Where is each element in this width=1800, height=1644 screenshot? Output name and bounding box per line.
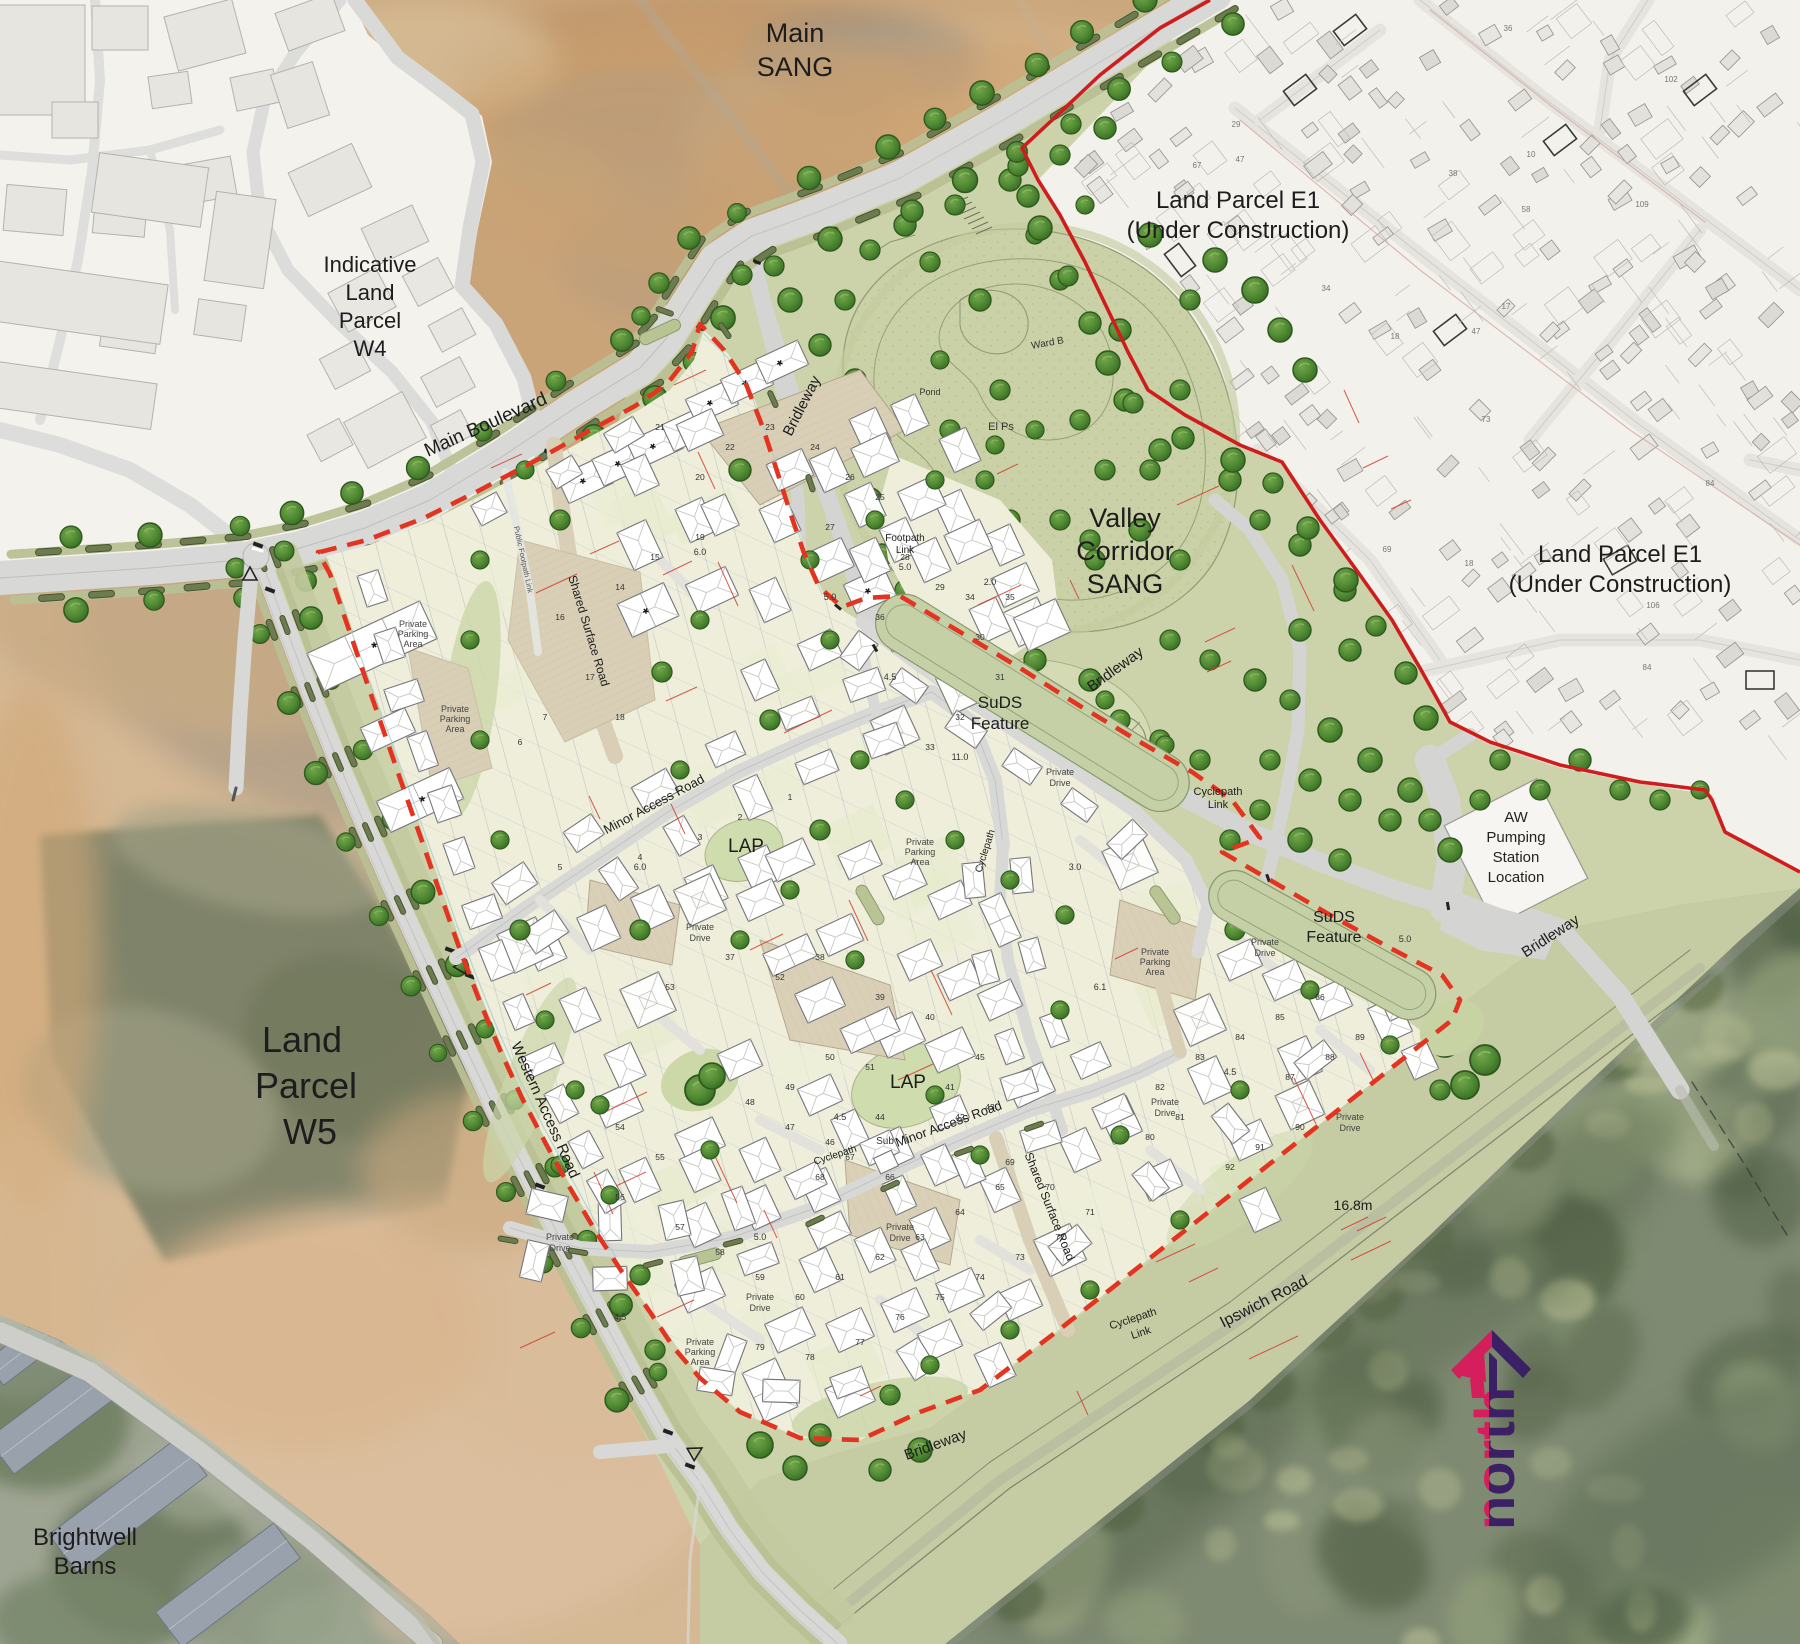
svg-text:W4: W4 [354,336,387,361]
svg-text:4.5: 4.5 [614,1312,627,1322]
svg-text:Private: Private [686,922,714,932]
svg-text:64: 64 [955,1207,965,1217]
svg-text:84: 84 [1643,663,1652,672]
svg-text:57: 57 [675,1222,685,1232]
svg-text:52: 52 [775,972,785,982]
svg-text:58: 58 [715,1247,725,1257]
svg-text:38: 38 [1449,169,1458,178]
svg-text:5.0: 5.0 [754,1232,767,1242]
svg-text:Drive: Drive [1254,948,1275,958]
svg-text:26: 26 [845,472,855,482]
svg-text:15: 15 [650,552,660,562]
svg-text:Drive: Drive [1049,778,1070,788]
svg-text:30: 30 [975,632,985,642]
svg-text:24: 24 [810,442,820,452]
svg-text:49: 49 [785,1082,795,1092]
svg-text:22: 22 [725,442,735,452]
svg-text:6: 6 [518,737,523,747]
svg-text:Brightwell: Brightwell [33,1524,137,1551]
svg-text:77: 77 [855,1337,865,1347]
svg-text:58: 58 [1522,205,1531,214]
svg-text:6.0: 6.0 [634,862,647,872]
svg-text:10: 10 [1527,150,1536,159]
svg-text:Indicative: Indicative [324,252,417,277]
svg-text:90: 90 [1295,1122,1305,1132]
svg-text:70: 70 [1045,1182,1055,1192]
svg-text:83: 83 [1195,1052,1205,1062]
svg-text:34: 34 [965,592,975,602]
svg-text:16.8m: 16.8m [1334,1197,1373,1213]
svg-text:Drive: Drive [889,1233,910,1243]
svg-text:Land: Land [346,280,395,305]
svg-text:53: 53 [665,982,675,992]
svg-text:45: 45 [975,1052,985,1062]
svg-text:55: 55 [655,1152,665,1162]
svg-text:106: 106 [1646,601,1660,610]
svg-text:Area: Area [1145,967,1164,977]
svg-text:19: 19 [695,532,705,542]
svg-text:Parcel: Parcel [339,308,401,333]
svg-text:78: 78 [805,1352,815,1362]
svg-text:59: 59 [755,1272,765,1282]
svg-text:38: 38 [815,952,825,962]
svg-text:18: 18 [1391,332,1400,341]
svg-text:11.0: 11.0 [952,752,969,762]
svg-text:Barns: Barns [54,1553,117,1580]
svg-text:25: 25 [875,492,885,502]
svg-text:Parking: Parking [1140,957,1171,967]
svg-text:87: 87 [1285,1072,1295,1082]
svg-text:Private: Private [1046,767,1074,777]
svg-text:75: 75 [935,1292,945,1302]
svg-text:Area: Area [690,1357,709,1367]
svg-text:27: 27 [825,522,835,532]
svg-text:60: 60 [795,1292,805,1302]
svg-text:Drive: Drive [689,933,710,943]
svg-text:5: 5 [558,862,563,872]
svg-text:Station: Station [1493,849,1540,866]
svg-text:67: 67 [845,1152,855,1162]
svg-text:Private: Private [399,619,427,629]
svg-text:Valley: Valley [1089,503,1161,533]
svg-text:69: 69 [1383,545,1392,554]
svg-text:Land: Land [262,1019,342,1060]
svg-text:35: 35 [1005,592,1015,602]
svg-text:5.0: 5.0 [899,562,912,572]
svg-text:82: 82 [1155,1082,1165,1092]
svg-text:80: 80 [1145,1132,1155,1142]
svg-text:Parking: Parking [685,1347,716,1357]
svg-text:Drive: Drive [549,1243,570,1253]
svg-text:Private: Private [886,1222,914,1232]
svg-text:El Ps: El Ps [988,421,1014,433]
svg-text:Cyclepath: Cyclepath [1194,786,1243,798]
svg-text:W5: W5 [283,1111,337,1152]
svg-text:Area: Area [403,639,422,649]
svg-text:4: 4 [638,852,643,862]
svg-text:Private: Private [1151,1097,1179,1107]
svg-text:Private: Private [1141,947,1169,957]
svg-text:LAP: LAP [890,1072,926,1093]
svg-text:1: 1 [788,792,793,802]
svg-text:16: 16 [555,612,565,622]
svg-text:36: 36 [875,612,885,622]
svg-text:109: 109 [1635,200,1649,209]
svg-text:SuDS: SuDS [978,693,1022,712]
svg-text:32: 32 [955,712,965,722]
svg-text:63: 63 [915,1232,925,1242]
svg-text:44: 44 [875,1112,885,1122]
svg-text:42: 42 [955,1112,965,1122]
svg-text:47: 47 [785,1122,795,1132]
svg-text:SuDS: SuDS [1313,909,1355,926]
svg-text:67: 67 [1193,161,1202,170]
svg-text:65: 65 [995,1182,1005,1192]
svg-text:4.5: 4.5 [884,672,897,682]
svg-text:23: 23 [765,422,775,432]
svg-text:47: 47 [1472,327,1481,336]
svg-text:SANG: SANG [1087,569,1164,599]
svg-text:3.0: 3.0 [1069,862,1082,872]
svg-text:85: 85 [1275,1012,1285,1022]
svg-text:2.0: 2.0 [984,577,997,587]
svg-text:6.0: 6.0 [694,547,707,557]
svg-text:Drive: Drive [1339,1123,1360,1133]
svg-text:5.0: 5.0 [824,592,837,602]
svg-text:SANG: SANG [757,52,834,82]
svg-text:Main: Main [766,18,825,48]
svg-text:21: 21 [655,422,665,432]
svg-text:34: 34 [1322,284,1331,293]
svg-text:Location: Location [1488,869,1545,886]
svg-text:68: 68 [815,1172,825,1182]
svg-text:Private: Private [441,704,469,714]
svg-text:Parking: Parking [905,847,936,857]
svg-text:51: 51 [865,1062,875,1072]
svg-text:14: 14 [615,582,625,592]
svg-text:Private: Private [746,1292,774,1302]
svg-text:6.1: 6.1 [1094,982,1107,992]
svg-text:47: 47 [1236,155,1245,164]
svg-text:Private: Private [906,837,934,847]
svg-text:Land Parcel E1: Land Parcel E1 [1156,187,1320,214]
svg-text:(Under Construction): (Under Construction) [1127,217,1350,244]
svg-text:Feature: Feature [971,714,1030,733]
svg-text:69: 69 [1005,1157,1015,1167]
svg-text:73: 73 [1482,415,1491,424]
svg-text:41: 41 [945,1082,955,1092]
svg-text:33: 33 [925,742,935,752]
svg-text:Parking: Parking [440,714,471,724]
svg-text:50: 50 [825,1052,835,1062]
svg-text:Area: Area [910,857,929,867]
svg-text:91: 91 [1255,1142,1265,1152]
svg-text:Private: Private [686,1337,714,1347]
svg-text:Area: Area [445,724,464,734]
svg-text:40: 40 [925,1012,935,1022]
svg-text:7: 7 [543,712,548,722]
svg-text:20: 20 [695,472,705,482]
svg-text:Private: Private [1251,937,1279,947]
svg-text:76: 76 [895,1312,905,1322]
svg-text:Parking: Parking [398,629,429,639]
svg-text:LAP: LAP [728,836,764,857]
svg-text:43: 43 [985,1102,995,1112]
svg-text:Link: Link [1208,799,1229,811]
svg-text:Pond: Pond [919,387,940,397]
svg-text:Corridor: Corridor [1076,536,1174,566]
svg-text:36: 36 [1504,24,1513,33]
svg-text:86: 86 [1315,992,1325,1002]
svg-text:Parcel: Parcel [255,1065,357,1106]
svg-text:84: 84 [1235,1032,1245,1042]
svg-text:74: 74 [975,1272,985,1282]
svg-text:Sub: Sub [876,1136,894,1147]
svg-text:48: 48 [745,1097,755,1107]
svg-text:46: 46 [825,1137,835,1147]
svg-text:72: 72 [1055,1232,1065,1242]
svg-text:Footpath: Footpath [885,533,924,544]
svg-text:18: 18 [615,712,625,722]
svg-text:Private: Private [1336,1112,1364,1122]
svg-text:AW: AW [1504,809,1528,826]
svg-text:56: 56 [615,1192,625,1202]
svg-text:102: 102 [1664,75,1678,84]
svg-text:81: 81 [1175,1112,1185,1122]
svg-text:4.5: 4.5 [834,1112,847,1122]
svg-text:61: 61 [835,1272,845,1282]
svg-text:92: 92 [1225,1162,1235,1172]
svg-text:88: 88 [1325,1052,1335,1062]
svg-text:Pumping: Pumping [1486,829,1545,846]
svg-text:29: 29 [1232,120,1241,129]
svg-text:28: 28 [900,552,910,562]
svg-text:(Under Construction): (Under Construction) [1509,571,1732,598]
svg-text:18: 18 [1465,559,1474,568]
svg-text:29: 29 [935,582,945,592]
svg-text:84: 84 [1706,479,1715,488]
svg-text:89: 89 [1355,1032,1365,1042]
svg-text:5.0: 5.0 [1399,934,1412,944]
svg-text:Drive: Drive [749,1303,770,1313]
svg-text:Private: Private [546,1232,574,1242]
svg-text:37: 37 [725,952,735,962]
svg-text:Feature: Feature [1306,929,1361,946]
svg-text:Drive: Drive [1154,1108,1175,1118]
svg-text:79: 79 [755,1342,765,1352]
svg-text:3: 3 [698,832,703,842]
svg-text:62: 62 [875,1252,885,1262]
svg-text:66: 66 [885,1172,895,1182]
svg-text:Land Parcel E1: Land Parcel E1 [1538,541,1702,568]
svg-text:71: 71 [1085,1207,1095,1217]
svg-text:73: 73 [1015,1252,1025,1262]
svg-text:17: 17 [585,672,595,682]
svg-text:39: 39 [875,992,885,1002]
svg-text:4.5: 4.5 [1224,1067,1237,1077]
svg-text:2: 2 [738,812,743,822]
svg-text:17: 17 [1502,302,1511,311]
svg-text:31: 31 [995,672,1005,682]
svg-text:54: 54 [615,1122,625,1132]
